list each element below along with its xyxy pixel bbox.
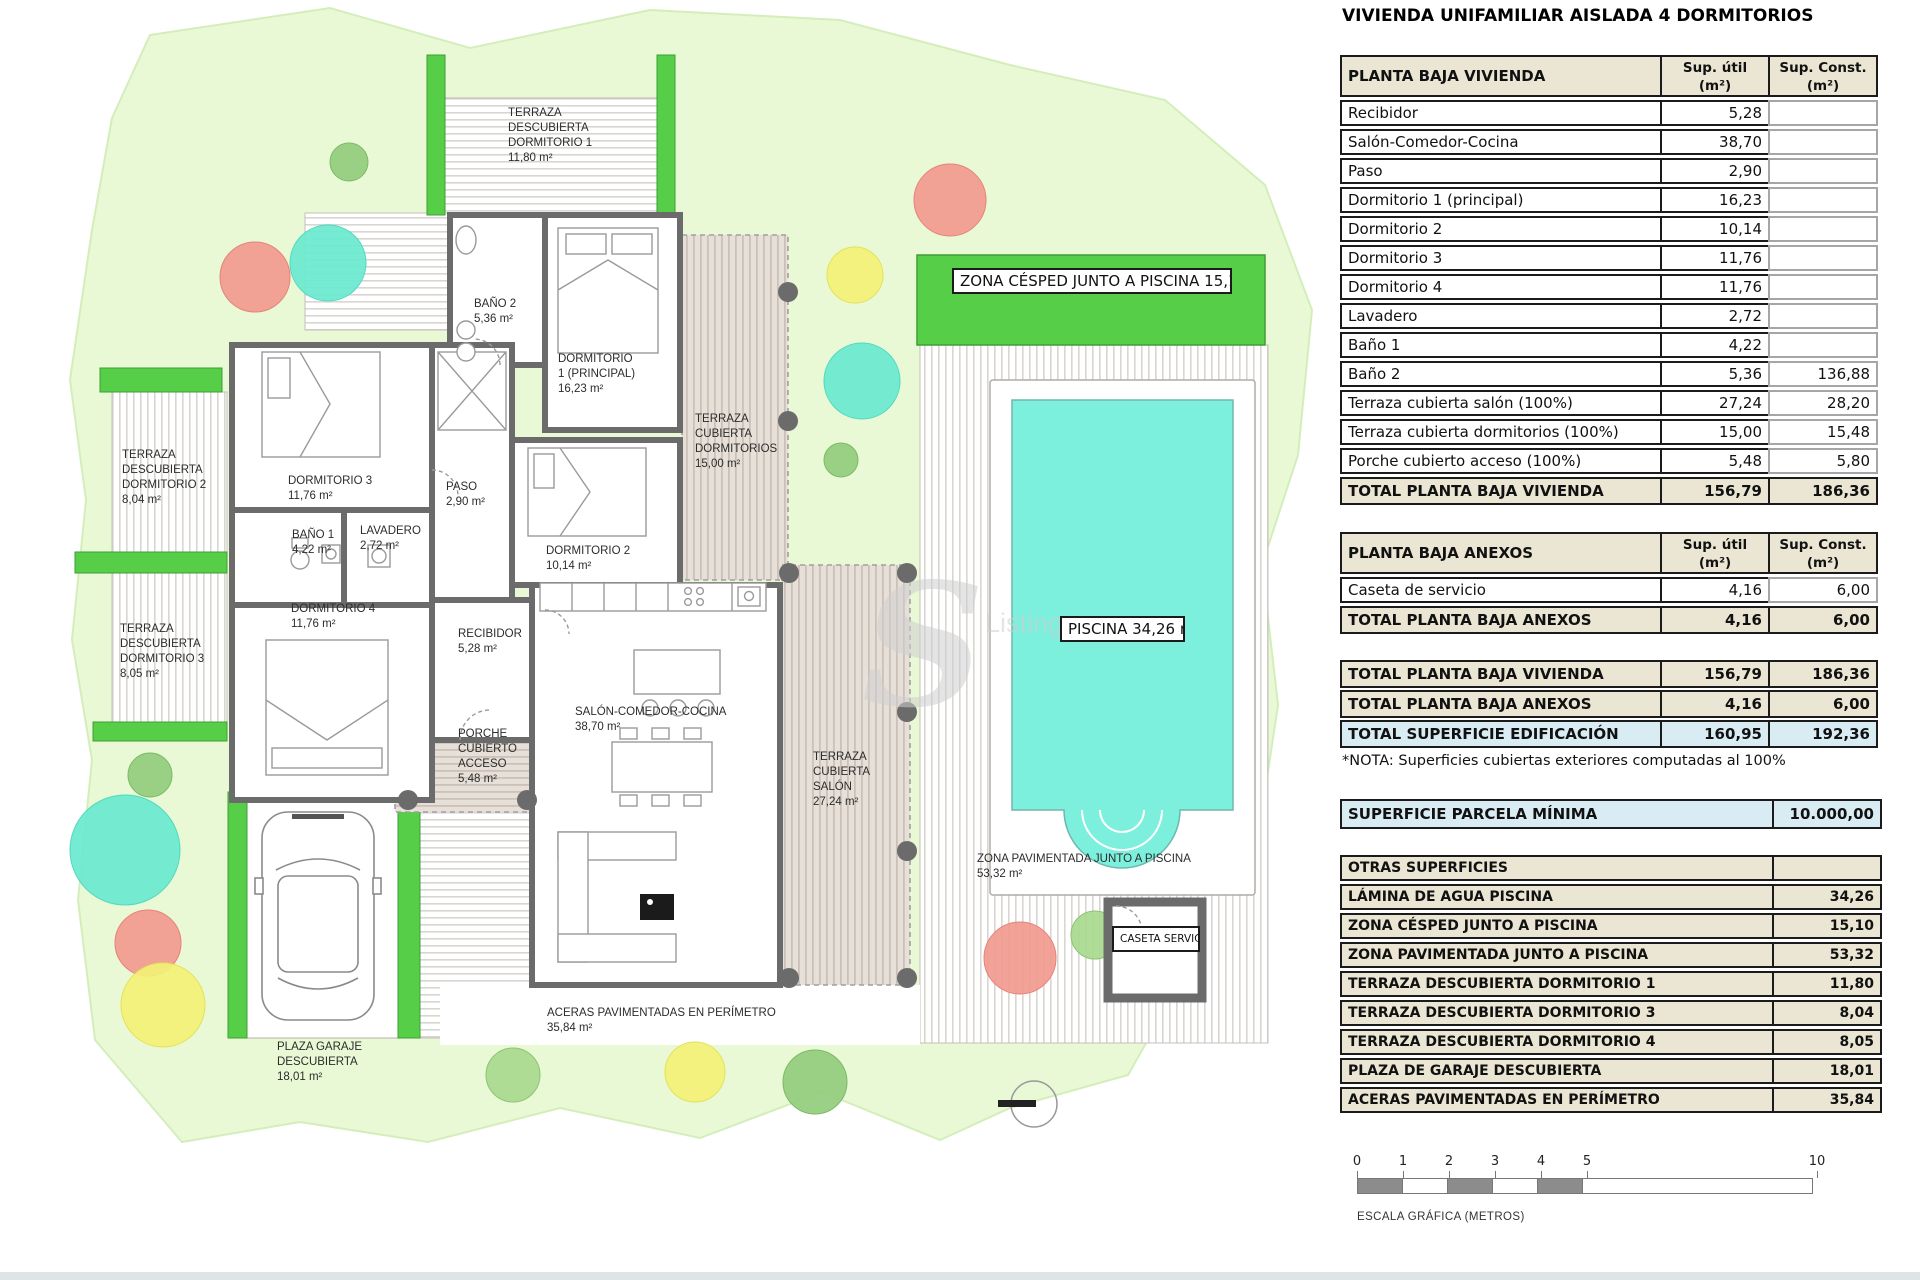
total-util: 156,79 <box>1660 477 1770 505</box>
bed-dorm1 <box>558 228 658 353</box>
wardrobe <box>438 352 506 430</box>
row-util: 4,16 <box>1660 577 1770 603</box>
scale-tick-label: 0 <box>1345 1155 1369 1169</box>
otras-value: 34,26 <box>1772 884 1882 910</box>
otras-row: ACERAS PAVIMENTADAS EN PERÍMETRO35,84 <box>1340 1087 1888 1113</box>
bed-dorm2 <box>528 448 646 536</box>
parcela-row: SUPERFICIE PARCELA MÍNIMA 10.000,00 <box>1340 799 1888 829</box>
row-label: Lavadero <box>1340 303 1662 329</box>
table-row: Baño 14,22 <box>1340 332 1888 358</box>
row-util: 5,36 <box>1660 361 1770 387</box>
row-label: Dormitorio 1 (principal) <box>1340 187 1662 213</box>
caseta-servicio <box>1108 902 1202 998</box>
row-label: Recibidor <box>1340 100 1662 126</box>
table-planta-baja-vivienda: PLANTA BAJA VIVIENDA Sup. útil (m²) Sup.… <box>1340 55 1888 505</box>
row-const: 6,00 <box>1768 577 1878 603</box>
row-const <box>1768 158 1878 184</box>
row-label: Porche cubierto acceso (100%) <box>1340 448 1662 474</box>
summary-row: TOTAL PLANTA BAJA VIVIENDA 156,79 186,36 <box>1340 660 1888 688</box>
car <box>255 812 381 1020</box>
bed-dorm3 <box>262 352 380 457</box>
otras-label: PLAZA DE GARAJE DESCUBIERTA <box>1340 1058 1774 1084</box>
row-label: Baño 2 <box>1340 361 1662 387</box>
scale-tick-label: 4 <box>1529 1155 1553 1169</box>
row-util: 38,70 <box>1660 129 1770 155</box>
table-header-label: PLANTA BAJA VIVIENDA <box>1340 55 1662 97</box>
kitchen-island <box>634 650 720 716</box>
row-util: 11,76 <box>1660 245 1770 271</box>
watermark-s: S <box>862 546 985 746</box>
table-row: Porche cubierto acceso (100%)5,485,80 <box>1340 448 1888 474</box>
summary-total-row: TOTAL SUPERFICIE EDIFICACIÓN 160,95 192,… <box>1340 720 1888 748</box>
col-header-sup-util: Sup. útil (m²) <box>1660 532 1770 574</box>
otras-row: TERRAZA DESCUBIERTA DORMITORIO 111,80 <box>1340 971 1888 997</box>
otras-label: ZONA PAVIMENTADA JUNTO A PISCINA <box>1340 942 1774 968</box>
otras-row: TERRAZA DESCUBIERTA DORMITORIO 48,05 <box>1340 1029 1888 1055</box>
otras-value: 8,05 <box>1772 1029 1882 1055</box>
row-label: Dormitorio 3 <box>1340 245 1662 271</box>
otras-row: ZONA PAVIMENTADA JUNTO A PISCINA53,32 <box>1340 942 1888 968</box>
otras-row: TERRAZA DESCUBIERTA DORMITORIO 38,04 <box>1340 1000 1888 1026</box>
otras-label: ZONA CÉSPED JUNTO A PISCINA <box>1340 913 1774 939</box>
row-const: 5,80 <box>1768 448 1878 474</box>
row-const <box>1768 332 1878 358</box>
table-row: Salón-Comedor-Cocina38,70 <box>1340 129 1888 155</box>
total-const: 186,36 <box>1768 477 1878 505</box>
col-header-sup-const: Sup. Const. (m²) <box>1768 532 1878 574</box>
summary-label: TOTAL SUPERFICIE EDIFICACIÓN <box>1340 720 1662 748</box>
row-label: Caseta de servicio <box>1340 577 1662 603</box>
otras-label: TERRAZA DESCUBIERTA DORMITORIO 1 <box>1340 971 1774 997</box>
otras-row: PLAZA DE GARAJE DESCUBIERTA18,01 <box>1340 1058 1888 1084</box>
row-const <box>1768 100 1878 126</box>
otras-value: 8,04 <box>1772 1000 1882 1026</box>
summary-label: TOTAL PLANTA BAJA ANEXOS <box>1340 690 1662 718</box>
summary-const: 6,00 <box>1768 690 1878 718</box>
otras-value: 11,80 <box>1772 971 1882 997</box>
surface-tables-panel: VIVIENDA UNIFAMILIAR AISLADA 4 DORMITORI… <box>1340 0 1900 1280</box>
row-label: Baño 1 <box>1340 332 1662 358</box>
row-label: Terraza cubierta salón (100%) <box>1340 390 1662 416</box>
scale-caption: ESCALA GRÁFICA (METROS) <box>1357 1211 1525 1223</box>
otras-label: TERRAZA DESCUBIERTA DORMITORIO 3 <box>1340 1000 1774 1026</box>
summary-label: TOTAL PLANTA BAJA VIVIENDA <box>1340 660 1662 688</box>
otras-label: LÁMINA DE AGUA PISCINA <box>1340 884 1774 910</box>
col-header-sup-const: Sup. Const. (m²) <box>1768 55 1878 97</box>
row-util: 2,90 <box>1660 158 1770 184</box>
row-const <box>1768 274 1878 300</box>
otras-value: 35,84 <box>1772 1087 1882 1113</box>
total-const: 6,00 <box>1768 606 1878 634</box>
row-util: 11,76 <box>1660 274 1770 300</box>
table-planta-baja-anexos: PLANTA BAJA ANEXOS Sup. útil (m²) Sup. C… <box>1340 532 1888 634</box>
row-util: 16,23 <box>1660 187 1770 213</box>
scale-tick-label: 1 <box>1391 1155 1415 1169</box>
row-util: 27,24 <box>1660 390 1770 416</box>
summary-util: 160,95 <box>1660 720 1770 748</box>
row-util: 10,14 <box>1660 216 1770 242</box>
row-util: 15,00 <box>1660 419 1770 445</box>
row-const: 136,88 <box>1768 361 1878 387</box>
otras-row: LÁMINA DE AGUA PISCINA34,26 <box>1340 884 1888 910</box>
total-util: 4,16 <box>1660 606 1770 634</box>
site-plan-sheet: S Listings TERRAZA DESCUBIERTA DORMITORI… <box>0 0 1920 1280</box>
col-header-sup-util: Sup. útil (m²) <box>1660 55 1770 97</box>
scale-tick-label: 2 <box>1437 1155 1461 1169</box>
otras-label: TERRAZA DESCUBIERTA DORMITORIO 4 <box>1340 1029 1774 1055</box>
summary-const: 192,36 <box>1768 720 1878 748</box>
table-row: Recibidor5,28 <box>1340 100 1888 126</box>
summary-const: 186,36 <box>1768 660 1878 688</box>
summary-util: 156,79 <box>1660 660 1770 688</box>
table-resumen: TOTAL PLANTA BAJA VIVIENDA 156,79 186,36… <box>1340 658 1888 748</box>
note-text: *NOTA: Superficies cubiertas exteriores … <box>1342 752 1786 770</box>
row-util: 4,22 <box>1660 332 1770 358</box>
row-label: Salón-Comedor-Cocina <box>1340 129 1662 155</box>
table-header-label: PLANTA BAJA ANEXOS <box>1340 532 1662 574</box>
total-label: TOTAL PLANTA BAJA VIVIENDA <box>1340 477 1662 505</box>
zona-cesped-area <box>917 255 1265 345</box>
row-const <box>1768 129 1878 155</box>
floor-plan-drawing: S Listings <box>0 0 1330 1280</box>
summary-util: 4,16 <box>1660 690 1770 718</box>
row-util: 5,48 <box>1660 448 1770 474</box>
table-row: Terraza cubierta salón (100%)27,2428,20 <box>1340 390 1888 416</box>
page-title: VIVIENDA UNIFAMILIAR AISLADA 4 DORMITORI… <box>1342 6 1813 26</box>
summary-row: TOTAL PLANTA BAJA ANEXOS 4,16 6,00 <box>1340 690 1888 718</box>
table-total-row: TOTAL PLANTA BAJA ANEXOS 4,16 6,00 <box>1340 606 1888 634</box>
page-footer-band <box>0 1272 1920 1280</box>
table-row: Terraza cubierta dormitorios (100%)15,00… <box>1340 419 1888 445</box>
row-const <box>1768 187 1878 213</box>
table-row: Paso2,90 <box>1340 158 1888 184</box>
row-util: 2,72 <box>1660 303 1770 329</box>
row-const <box>1768 245 1878 271</box>
table-parcela-minima: SUPERFICIE PARCELA MÍNIMA 10.000,00 <box>1340 796 1888 829</box>
scale-bar-segments <box>1357 1178 1813 1194</box>
kitchen-counter <box>540 583 766 611</box>
otras-label: ACERAS PAVIMENTADAS EN PERÍMETRO <box>1340 1087 1774 1113</box>
scale-tick-label: 3 <box>1483 1155 1507 1169</box>
tv <box>640 894 674 920</box>
table-row: Dormitorio 210,14 <box>1340 216 1888 242</box>
otras-value: 15,10 <box>1772 913 1882 939</box>
table-otras-superficies: OTRAS SUPERFICIES LÁMINA DE AGUA PISCINA… <box>1340 855 1888 1113</box>
row-const: 28,20 <box>1768 390 1878 416</box>
row-label: Dormitorio 2 <box>1340 216 1662 242</box>
scale-tick-label: 5 <box>1575 1155 1599 1169</box>
total-label: TOTAL PLANTA BAJA ANEXOS <box>1340 606 1662 634</box>
watermark-text: Listings <box>985 608 1077 638</box>
row-label: Terraza cubierta dormitorios (100%) <box>1340 419 1662 445</box>
table-header-row: PLANTA BAJA ANEXOS Sup. útil (m²) Sup. C… <box>1340 532 1888 574</box>
row-util: 5,28 <box>1660 100 1770 126</box>
otras-header-label: OTRAS SUPERFICIES <box>1340 855 1774 881</box>
row-const <box>1768 216 1878 242</box>
otras-value: 53,32 <box>1772 942 1882 968</box>
table-row: Dormitorio 1 (principal)16,23 <box>1340 187 1888 213</box>
otras-row: ZONA CÉSPED JUNTO A PISCINA15,10 <box>1340 913 1888 939</box>
parcela-value: 10.000,00 <box>1772 799 1882 829</box>
table-header-row: PLANTA BAJA VIVIENDA Sup. útil (m²) Sup.… <box>1340 55 1888 97</box>
otras-value: 18,01 <box>1772 1058 1882 1084</box>
parcela-label: SUPERFICIE PARCELA MÍNIMA <box>1340 799 1774 829</box>
otras-header-value <box>1772 855 1882 881</box>
row-const: 15,48 <box>1768 419 1878 445</box>
table-row: Caseta de servicio 4,16 6,00 <box>1340 577 1888 603</box>
row-label: Paso <box>1340 158 1662 184</box>
table-total-row: TOTAL PLANTA BAJA VIVIENDA 156,79 186,36 <box>1340 477 1888 505</box>
table-row: Dormitorio 411,76 <box>1340 274 1888 300</box>
scale-tick-label: 10 <box>1805 1155 1829 1169</box>
row-const <box>1768 303 1878 329</box>
bed-dorm4 <box>266 640 388 775</box>
row-label: Dormitorio 4 <box>1340 274 1662 300</box>
laundry-fixtures <box>368 545 390 567</box>
table-row: Dormitorio 311,76 <box>1340 245 1888 271</box>
otras-header-row: OTRAS SUPERFICIES <box>1340 855 1888 881</box>
table-row: Baño 25,36136,88 <box>1340 361 1888 387</box>
scale-bar: 0 1 2 3 4 5 10 ESCALA GRÁFICA (METROS) <box>1357 1155 1837 1245</box>
table-row: Lavadero2,72 <box>1340 303 1888 329</box>
